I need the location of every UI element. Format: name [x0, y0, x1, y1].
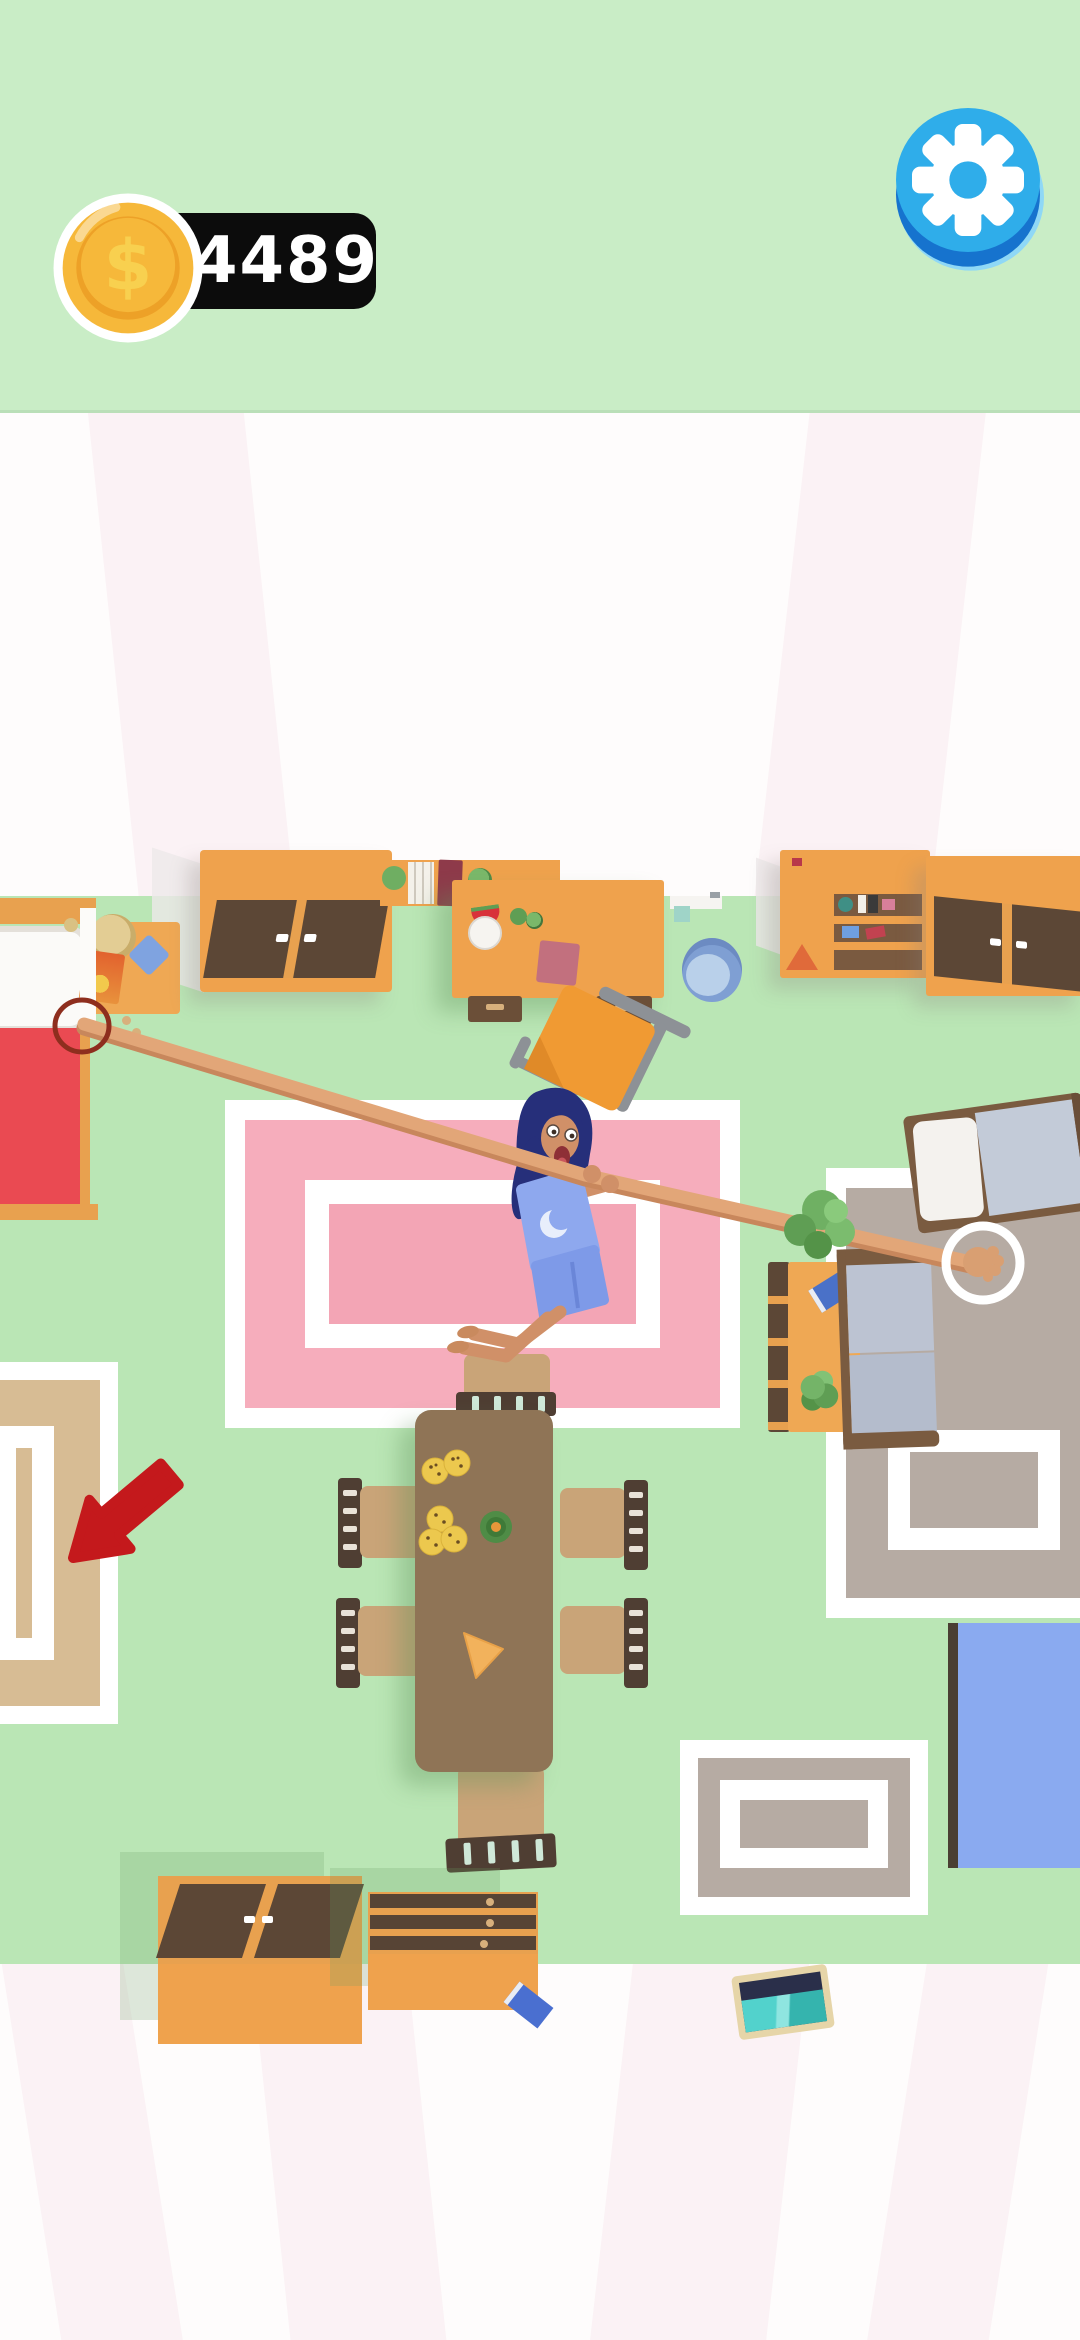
- chair-back: [338, 1478, 362, 1568]
- chair-seat: [560, 1606, 626, 1674]
- red-cloth: [865, 925, 886, 939]
- bathtub-basin: [0, 926, 88, 1032]
- dining-chair-right-2: [560, 1598, 652, 1690]
- chair-slat: [629, 1528, 643, 1534]
- knob: [132, 1028, 141, 1037]
- blue-rug: [948, 1623, 1080, 1868]
- red-bed: [0, 1028, 90, 1214]
- door-handle: [303, 934, 316, 942]
- desk: [452, 880, 664, 998]
- chair-slat: [629, 1664, 643, 1670]
- shelf-interior: [834, 894, 922, 970]
- svg-text:$: $: [104, 225, 153, 306]
- wardrobe-front: [158, 1964, 362, 2044]
- green-bowl: [480, 1511, 512, 1543]
- drawer-knob: [480, 1940, 488, 1948]
- chair-slat: [629, 1646, 643, 1652]
- plant: [382, 866, 406, 890]
- drawer-strip: [370, 1894, 536, 1908]
- chair-slat: [341, 1646, 355, 1652]
- mattress: [975, 1099, 1080, 1216]
- chair-slat: [629, 1628, 643, 1634]
- table-items: [415, 1410, 553, 1772]
- plate: [468, 916, 502, 950]
- plant-pot: [526, 912, 543, 929]
- wardrobe-top-right: [926, 856, 1080, 996]
- shelving-unit-right: [780, 850, 930, 978]
- bench-plant: [796, 1368, 844, 1416]
- painting-art: [741, 1989, 827, 2032]
- chair-slat: [343, 1490, 357, 1496]
- chair-slat: [341, 1610, 355, 1616]
- chair-slat: [629, 1510, 643, 1516]
- chair-slat: [629, 1610, 643, 1616]
- chair-slat: [343, 1508, 357, 1514]
- towel: [674, 906, 690, 922]
- knob: [122, 1016, 131, 1025]
- pink-cloth: [536, 940, 580, 986]
- door-handle: [1016, 941, 1027, 949]
- dresser-bottom: [368, 1892, 538, 2010]
- drawer-handle: [615, 1005, 633, 1011]
- sink-shelf: [670, 890, 726, 934]
- desk-drawer: [596, 996, 652, 1024]
- game-screen: 4489 $: [0, 0, 1080, 2340]
- white-book: [858, 895, 866, 913]
- pillow: [912, 1117, 984, 1222]
- bucket-inside: [686, 954, 730, 996]
- pink-item: [882, 899, 895, 910]
- black-book: [868, 895, 878, 913]
- chair-slat: [343, 1526, 357, 1532]
- bathtub-faucet: [64, 918, 78, 932]
- wardrobe-bottom: [158, 1876, 362, 2044]
- teal-ball: [838, 897, 853, 912]
- blue-cloth: [842, 926, 859, 938]
- wardrobe-top-face: [158, 1876, 362, 1966]
- dollar-coin-icon: $: [52, 192, 204, 344]
- couch-cushion: [846, 1262, 934, 1353]
- orange-triangle: [786, 944, 818, 970]
- cookies: [419, 1450, 470, 1555]
- drawer-strip: [370, 1936, 536, 1950]
- bottom-taupe-rug-inner-ring: [720, 1780, 888, 1868]
- red-dot: [792, 858, 802, 866]
- wardrobe-top-left: [200, 850, 392, 992]
- chair-back: [336, 1598, 360, 1688]
- highlighted-tan-rug[interactable]: [0, 1362, 118, 1724]
- chair-back: [624, 1598, 648, 1688]
- chair-slat: [511, 1840, 519, 1862]
- desk-drawer: [468, 996, 522, 1022]
- chair-slat: [341, 1628, 355, 1634]
- dresser-top-face: [368, 1892, 538, 1956]
- taupe-rug-inner-ring: [888, 1430, 1060, 1550]
- door-handle: [244, 1916, 255, 1923]
- dining-chair-right-1: [560, 1480, 652, 1572]
- chair-back: [445, 1833, 557, 1873]
- settings-button[interactable]: [888, 100, 1048, 276]
- chair-slat: [463, 1843, 471, 1865]
- door-handle: [262, 1916, 273, 1923]
- blue-bucket: [682, 938, 742, 1002]
- pink-rug-inner-ring: [305, 1180, 660, 1348]
- dining-chair-top: [456, 1354, 556, 1416]
- plant-pot: [510, 908, 527, 925]
- chair-slat: [629, 1492, 643, 1498]
- shelf-board: [834, 942, 922, 950]
- white-books: [408, 862, 434, 904]
- shelf-board: [834, 916, 922, 924]
- door-handle: [990, 938, 1001, 946]
- couch-cushion: [849, 1352, 937, 1435]
- chair-slat: [535, 1839, 543, 1861]
- red-bed-footboard: [0, 1204, 98, 1220]
- drawer-knob: [486, 1919, 494, 1927]
- coin-amount: 4489: [193, 224, 379, 298]
- couch: [837, 1246, 940, 1449]
- bathroom-wall: [80, 908, 96, 1032]
- hud-header: 4489 $: [0, 0, 1080, 413]
- drawer-strip: [370, 1915, 536, 1929]
- tan-rug-inner-ring: [0, 1426, 54, 1660]
- couch-frame-bottom: [843, 1430, 939, 1449]
- chair-slat: [341, 1664, 355, 1670]
- wardrobe-doors: [203, 900, 389, 978]
- chair-slat: [343, 1544, 357, 1550]
- bottom-taupe-rug: [680, 1740, 928, 1915]
- bench-slats: [768, 1262, 790, 1432]
- wardrobe-doors: [934, 896, 1080, 992]
- chair-seat: [560, 1488, 626, 1558]
- dining-table: [415, 1410, 553, 1772]
- dining-chair-bottom: [446, 1766, 556, 1874]
- bed-top-right: [903, 1092, 1080, 1234]
- gear-icon: [888, 100, 1048, 276]
- drawer-knob: [486, 1898, 494, 1906]
- chair-slat: [629, 1546, 643, 1552]
- door-handle: [275, 934, 288, 942]
- nightstand: [88, 922, 180, 1014]
- chair-slat: [487, 1841, 495, 1863]
- pizza-slice: [464, 1633, 503, 1678]
- drawer-handle: [486, 1004, 504, 1010]
- chair-back: [624, 1480, 648, 1570]
- faucet: [710, 892, 720, 898]
- floor-painting: [731, 1964, 835, 2041]
